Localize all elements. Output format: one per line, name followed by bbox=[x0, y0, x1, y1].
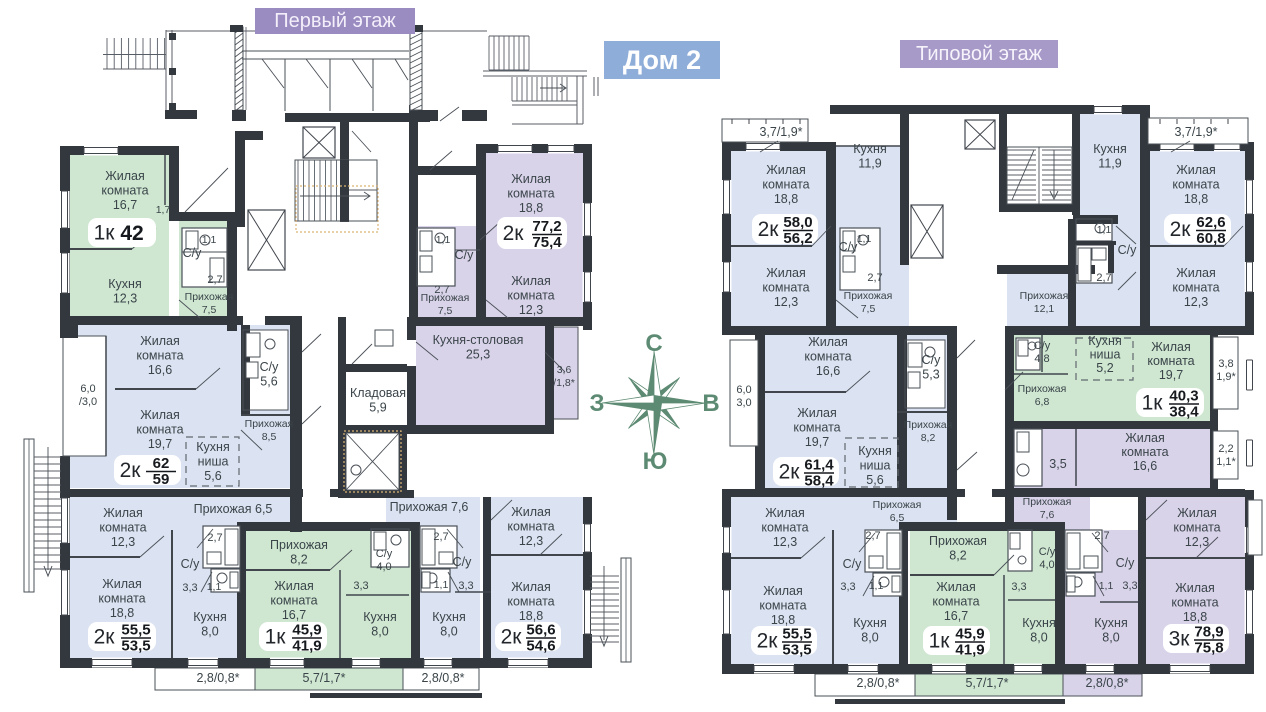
svg-text:3,3: 3,3 bbox=[1011, 581, 1026, 593]
svg-text:Жилая: Жилая bbox=[511, 274, 551, 288]
svg-text:1к: 1к bbox=[929, 630, 951, 653]
svg-text:12,3: 12,3 bbox=[1184, 295, 1208, 309]
svg-text:2к: 2к bbox=[501, 626, 523, 649]
svg-text:77,2: 77,2 bbox=[532, 218, 561, 235]
svg-text:Первый этаж: Первый этаж bbox=[274, 10, 396, 32]
svg-text:8,0: 8,0 bbox=[201, 625, 218, 639]
svg-text:С/у: С/у bbox=[181, 557, 201, 571]
svg-text:Кухня-столовая: Кухня-столовая bbox=[433, 333, 524, 347]
svg-text:8,5: 8,5 bbox=[262, 431, 277, 443]
svg-text:6,0: 6,0 bbox=[736, 384, 751, 396]
svg-text:комната: комната bbox=[101, 184, 148, 198]
svg-text:Жилая: Жилая bbox=[766, 266, 806, 280]
svg-text:Жилая: Жилая bbox=[1175, 581, 1215, 595]
svg-text:Прихожая: Прихожая bbox=[270, 538, 328, 552]
svg-text:45,9: 45,9 bbox=[292, 622, 321, 639]
svg-text:Прихожая: Прихожая bbox=[929, 534, 987, 548]
svg-text:комната: комната bbox=[761, 521, 808, 535]
svg-text:8,2: 8,2 bbox=[949, 549, 966, 563]
svg-text:8,2: 8,2 bbox=[921, 432, 936, 444]
svg-text:12,1: 12,1 bbox=[1034, 303, 1055, 315]
svg-text:Жилая: Жилая bbox=[1151, 340, 1191, 354]
svg-text:Кухня: Кухня bbox=[432, 610, 465, 624]
svg-text:1к: 1к bbox=[1142, 392, 1164, 415]
svg-text:4,0: 4,0 bbox=[1039, 559, 1054, 571]
svg-text:2к: 2к bbox=[779, 461, 801, 484]
svg-text:Ю: Ю bbox=[643, 448, 668, 475]
svg-text:Жилая: Жилая bbox=[511, 580, 551, 594]
svg-text:комната: комната bbox=[1172, 178, 1219, 192]
svg-text:11,9: 11,9 bbox=[858, 157, 881, 171]
svg-text:2,7: 2,7 bbox=[433, 531, 448, 543]
svg-text:Жилая: Жилая bbox=[105, 169, 145, 183]
svg-text:1к: 1к bbox=[94, 222, 116, 245]
svg-text:Прихожая: Прихожая bbox=[844, 290, 893, 302]
svg-text:комната: комната bbox=[759, 599, 806, 613]
svg-text:4,0: 4,0 bbox=[376, 561, 391, 573]
svg-text:53,5: 53,5 bbox=[782, 642, 811, 659]
svg-text:Кухня: Кухня bbox=[853, 616, 886, 630]
svg-text:41,9: 41,9 bbox=[292, 638, 321, 655]
svg-text:Прихожая: Прихожая bbox=[185, 291, 234, 303]
svg-text:Кладовая: Кладовая bbox=[350, 386, 406, 400]
svg-text:Жилая: Жилая bbox=[140, 334, 180, 348]
svg-text:1,9*: 1,9* bbox=[1216, 371, 1236, 383]
svg-text:7,5: 7,5 bbox=[438, 305, 453, 317]
svg-text:12,3: 12,3 bbox=[113, 292, 137, 306]
svg-text:78,9: 78,9 bbox=[1194, 624, 1223, 641]
svg-text:Прихожая: Прихожая bbox=[1020, 290, 1069, 302]
svg-text:12,3: 12,3 bbox=[773, 535, 797, 549]
svg-text:Жилая: Жилая bbox=[1177, 506, 1217, 520]
svg-text:Прихожая 6,5: Прихожая 6,5 bbox=[194, 502, 273, 516]
svg-text:Жилая: Жилая bbox=[808, 335, 848, 349]
svg-text:11,9: 11,9 bbox=[1098, 157, 1121, 171]
svg-text:В: В bbox=[702, 390, 719, 417]
svg-text:1,1: 1,1 bbox=[1097, 224, 1112, 236]
svg-text:19,7: 19,7 bbox=[805, 435, 829, 449]
svg-text:Жилая: Жилая bbox=[763, 584, 803, 598]
svg-text:2к: 2к bbox=[1170, 218, 1192, 241]
svg-text:С/у: С/у bbox=[455, 248, 475, 262]
svg-text:5,3: 5,3 bbox=[922, 368, 939, 382]
svg-text:С/у: С/у bbox=[183, 246, 203, 260]
svg-text:комната: комната bbox=[762, 281, 809, 295]
svg-text:Жилая: Жилая bbox=[140, 408, 180, 422]
svg-text:2к: 2к bbox=[503, 222, 525, 245]
svg-text:2к: 2к bbox=[758, 218, 780, 241]
svg-text:16,6: 16,6 bbox=[148, 363, 172, 377]
svg-text:/1,8*: /1,8* bbox=[553, 377, 575, 389]
svg-text:ниша: ниша bbox=[860, 459, 891, 473]
svg-text:18,8: 18,8 bbox=[519, 201, 543, 215]
svg-text:З: З bbox=[589, 390, 604, 417]
svg-text:8,0: 8,0 bbox=[1102, 631, 1119, 645]
svg-text:2,8/0,8*: 2,8/0,8* bbox=[421, 671, 464, 685]
svg-text:5,9: 5,9 bbox=[369, 401, 386, 415]
svg-text:3,3: 3,3 bbox=[458, 580, 473, 592]
svg-text:1,7: 1,7 bbox=[156, 204, 171, 216]
svg-text:1,1: 1,1 bbox=[869, 580, 884, 592]
svg-text:38,4: 38,4 bbox=[1169, 404, 1199, 421]
svg-text:комната: комната bbox=[1172, 281, 1219, 295]
svg-text:комната: комната bbox=[136, 423, 183, 437]
svg-text:С/у: С/у bbox=[922, 353, 942, 367]
svg-text:25,3: 25,3 bbox=[466, 348, 490, 362]
svg-text:ниша: ниша bbox=[1090, 348, 1121, 362]
svg-text:Жилая: Жилая bbox=[797, 406, 837, 420]
svg-text:Жилая: Жилая bbox=[1176, 163, 1216, 177]
svg-text:3,7/1,9*: 3,7/1,9* bbox=[1174, 125, 1217, 139]
svg-text:Кухня: Кухня bbox=[1088, 334, 1121, 348]
svg-text:С/у: С/у bbox=[843, 557, 863, 571]
svg-text:8,2: 8,2 bbox=[290, 553, 307, 567]
svg-text:Прихожая: Прихожая bbox=[873, 499, 922, 511]
svg-text:7,6: 7,6 bbox=[1040, 509, 1055, 521]
svg-text:3,8: 3,8 bbox=[1218, 358, 1233, 370]
svg-text:комната: комната bbox=[1173, 521, 1220, 535]
svg-text:4,8: 4,8 bbox=[1034, 353, 1049, 365]
svg-text:С/у: С/у bbox=[453, 555, 473, 569]
svg-text:Жилая: Жилая bbox=[102, 577, 142, 591]
svg-text:5,6: 5,6 bbox=[204, 469, 221, 483]
svg-text:2к: 2к bbox=[757, 630, 779, 653]
svg-text:2,8/0,8*: 2,8/0,8* bbox=[856, 676, 899, 690]
svg-text:3,3: 3,3 bbox=[182, 582, 197, 594]
svg-text:5,2: 5,2 bbox=[1096, 361, 1113, 375]
svg-text:Кухня: Кухня bbox=[108, 277, 141, 291]
svg-text:комната: комната bbox=[136, 349, 183, 363]
svg-text:комната: комната bbox=[507, 289, 554, 303]
svg-text:3,7/1,9*: 3,7/1,9* bbox=[759, 125, 802, 139]
svg-text:58,4: 58,4 bbox=[804, 473, 834, 490]
svg-text:53,5: 53,5 bbox=[121, 638, 150, 655]
svg-text:40,3: 40,3 bbox=[1169, 388, 1198, 405]
svg-text:1,1*: 1,1* bbox=[1216, 456, 1236, 468]
svg-text:2,7: 2,7 bbox=[1096, 272, 1111, 284]
svg-text:5,6: 5,6 bbox=[866, 473, 883, 487]
svg-text:58,0: 58,0 bbox=[783, 214, 812, 231]
svg-text:56,2: 56,2 bbox=[783, 230, 812, 247]
svg-text:комната: комната bbox=[1171, 596, 1218, 610]
svg-text:2,7: 2,7 bbox=[207, 532, 222, 544]
svg-text:Жилая: Жилая bbox=[511, 505, 551, 519]
svg-text:42: 42 bbox=[120, 222, 143, 245]
svg-text:41,9: 41,9 bbox=[955, 642, 984, 659]
svg-text:2к: 2к bbox=[120, 459, 142, 482]
svg-text:Жилая: Жилая bbox=[274, 579, 314, 593]
svg-text:3,3: 3,3 bbox=[840, 581, 855, 593]
svg-text:1,1: 1,1 bbox=[436, 234, 451, 246]
svg-text:комната: комната bbox=[98, 592, 145, 606]
svg-text:19,7: 19,7 bbox=[1159, 368, 1183, 382]
svg-text:3,0: 3,0 bbox=[736, 397, 751, 409]
svg-text:ниша: ниша bbox=[198, 455, 229, 469]
svg-text:Жилая: Жилая bbox=[766, 163, 806, 177]
svg-text:С/у: С/у bbox=[1118, 243, 1138, 257]
svg-text:62,6: 62,6 bbox=[1196, 214, 1225, 231]
svg-text:56,6: 56,6 bbox=[526, 622, 555, 639]
svg-text:2,2: 2,2 bbox=[1218, 443, 1233, 455]
svg-text:2,7: 2,7 bbox=[207, 274, 222, 286]
svg-text:12,3: 12,3 bbox=[111, 535, 135, 549]
svg-text:3к: 3к bbox=[1169, 628, 1191, 651]
svg-text:Кухня: Кухня bbox=[1094, 616, 1127, 630]
svg-text:16,7: 16,7 bbox=[282, 608, 306, 622]
svg-text:6,5: 6,5 bbox=[890, 512, 905, 524]
svg-text:Прихожая: Прихожая bbox=[245, 418, 294, 430]
svg-text:45,9: 45,9 bbox=[955, 626, 984, 643]
svg-text:62: 62 bbox=[153, 455, 170, 472]
svg-text:18,8: 18,8 bbox=[110, 606, 134, 620]
svg-text:12,3: 12,3 bbox=[519, 303, 543, 317]
svg-text:С/у: С/у bbox=[376, 548, 393, 560]
svg-text:С/у: С/у bbox=[839, 240, 859, 254]
svg-text:5,7/1,7*: 5,7/1,7* bbox=[965, 676, 1008, 690]
svg-text:1,1: 1,1 bbox=[1099, 580, 1114, 592]
svg-text:75,8: 75,8 bbox=[1194, 640, 1223, 657]
svg-text:комната: комната bbox=[793, 421, 840, 435]
svg-text:С/у: С/у bbox=[260, 360, 280, 374]
svg-text:1,1: 1,1 bbox=[857, 233, 872, 245]
svg-text:16,6: 16,6 bbox=[1133, 459, 1157, 473]
svg-text:Кухня: Кухня bbox=[858, 444, 891, 458]
svg-text:комната: комната bbox=[507, 595, 554, 609]
svg-text:Кухня: Кухня bbox=[1022, 616, 1055, 630]
svg-text:2к: 2к bbox=[94, 626, 116, 649]
svg-text:1,1: 1,1 bbox=[434, 579, 449, 591]
svg-text:18,8: 18,8 bbox=[1183, 610, 1207, 624]
svg-text:Типовой этаж: Типовой этаж bbox=[916, 43, 1043, 65]
svg-text:комната: комната bbox=[507, 187, 554, 201]
svg-text:2,7: 2,7 bbox=[865, 530, 880, 542]
svg-text:3,5: 3,5 bbox=[1049, 457, 1066, 471]
svg-text:2,7: 2,7 bbox=[1094, 530, 1109, 542]
svg-text:12,3: 12,3 bbox=[1185, 535, 1209, 549]
svg-text:С/у: С/у bbox=[1116, 556, 1136, 570]
svg-text:комната: комната bbox=[1147, 354, 1194, 368]
svg-text:8,0: 8,0 bbox=[371, 625, 388, 639]
svg-text:Прихожая: Прихожая bbox=[1018, 383, 1067, 395]
svg-text:комната: комната bbox=[932, 595, 979, 609]
svg-text:6,8: 6,8 bbox=[1035, 396, 1050, 408]
svg-text:С/у: С/у bbox=[1034, 340, 1051, 352]
svg-text:Кухня: Кухня bbox=[363, 610, 396, 624]
svg-text:1к: 1к bbox=[265, 626, 287, 649]
svg-text:16,6: 16,6 bbox=[816, 364, 840, 378]
svg-text:Жилая: Жилая bbox=[511, 172, 551, 186]
svg-text:60,8: 60,8 bbox=[1196, 230, 1225, 247]
svg-text:59: 59 bbox=[153, 471, 170, 488]
svg-text:1,1: 1,1 bbox=[202, 234, 217, 246]
svg-text:Кухня: Кухня bbox=[196, 440, 229, 454]
svg-text:19,7: 19,7 bbox=[148, 437, 172, 451]
svg-text:12,3: 12,3 bbox=[774, 295, 798, 309]
svg-text:55,5: 55,5 bbox=[782, 626, 811, 643]
svg-text:1,1: 1,1 bbox=[207, 581, 222, 593]
svg-text:8,0: 8,0 bbox=[861, 631, 878, 645]
svg-text:комната: комната bbox=[99, 521, 146, 535]
svg-text:комната: комната bbox=[804, 350, 851, 364]
svg-text:Кухня: Кухня bbox=[853, 142, 886, 156]
svg-text:7,5: 7,5 bbox=[861, 303, 876, 315]
svg-text:12,3: 12,3 bbox=[519, 534, 543, 548]
svg-text:Дом 2: Дом 2 bbox=[623, 45, 701, 75]
svg-text:3,3: 3,3 bbox=[353, 580, 368, 592]
svg-text:Прихожая: Прихожая bbox=[1023, 496, 1072, 508]
svg-text:55,5: 55,5 bbox=[121, 622, 150, 639]
svg-text:8,0: 8,0 bbox=[440, 625, 457, 639]
svg-text:2,8/0,8*: 2,8/0,8* bbox=[196, 671, 239, 685]
svg-text:комната: комната bbox=[270, 594, 317, 608]
svg-text:3,6: 3,6 bbox=[557, 364, 572, 376]
svg-text:С: С bbox=[645, 330, 662, 357]
svg-text:2,7: 2,7 bbox=[867, 272, 882, 284]
svg-text:комната: комната bbox=[507, 520, 554, 534]
svg-text:75,4: 75,4 bbox=[532, 234, 562, 251]
svg-text:5,6: 5,6 bbox=[260, 375, 277, 389]
svg-text:Жилая: Жилая bbox=[936, 580, 976, 594]
svg-text:7,5: 7,5 bbox=[202, 304, 217, 316]
svg-text:18,8: 18,8 bbox=[1184, 192, 1208, 206]
svg-text:комната: комната bbox=[762, 178, 809, 192]
svg-text:Жилая: Жилая bbox=[103, 506, 143, 520]
svg-text:6,0: 6,0 bbox=[80, 383, 95, 395]
svg-text:Жилая: Жилая bbox=[1176, 266, 1216, 280]
svg-text:Жилая: Жилая bbox=[1125, 431, 1165, 445]
svg-text:Прихожая: Прихожая bbox=[904, 419, 953, 431]
svg-text:Жилая: Жилая bbox=[765, 506, 805, 520]
svg-text:/3,0: /3,0 bbox=[79, 396, 97, 408]
svg-text:5,7/1,7*: 5,7/1,7* bbox=[302, 671, 345, 685]
svg-text:16,7: 16,7 bbox=[944, 609, 968, 623]
svg-text:3,3: 3,3 bbox=[1122, 580, 1137, 592]
svg-text:комната: комната bbox=[1121, 445, 1168, 459]
svg-text:16,7: 16,7 bbox=[113, 198, 137, 212]
svg-text:18,8: 18,8 bbox=[774, 192, 798, 206]
svg-text:54,6: 54,6 bbox=[526, 638, 555, 655]
svg-text:Кухня: Кухня bbox=[193, 610, 226, 624]
svg-text:8,0: 8,0 bbox=[1030, 631, 1047, 645]
svg-text:2,8/0,8*: 2,8/0,8* bbox=[1085, 676, 1128, 690]
svg-text:Прихожая 7,6: Прихожая 7,6 bbox=[390, 500, 469, 514]
svg-text:61,4: 61,4 bbox=[804, 457, 834, 474]
svg-text:С/у: С/у bbox=[1039, 546, 1056, 558]
svg-text:Прихожая: Прихожая bbox=[421, 292, 470, 304]
svg-text:Кухня: Кухня bbox=[1093, 142, 1126, 156]
